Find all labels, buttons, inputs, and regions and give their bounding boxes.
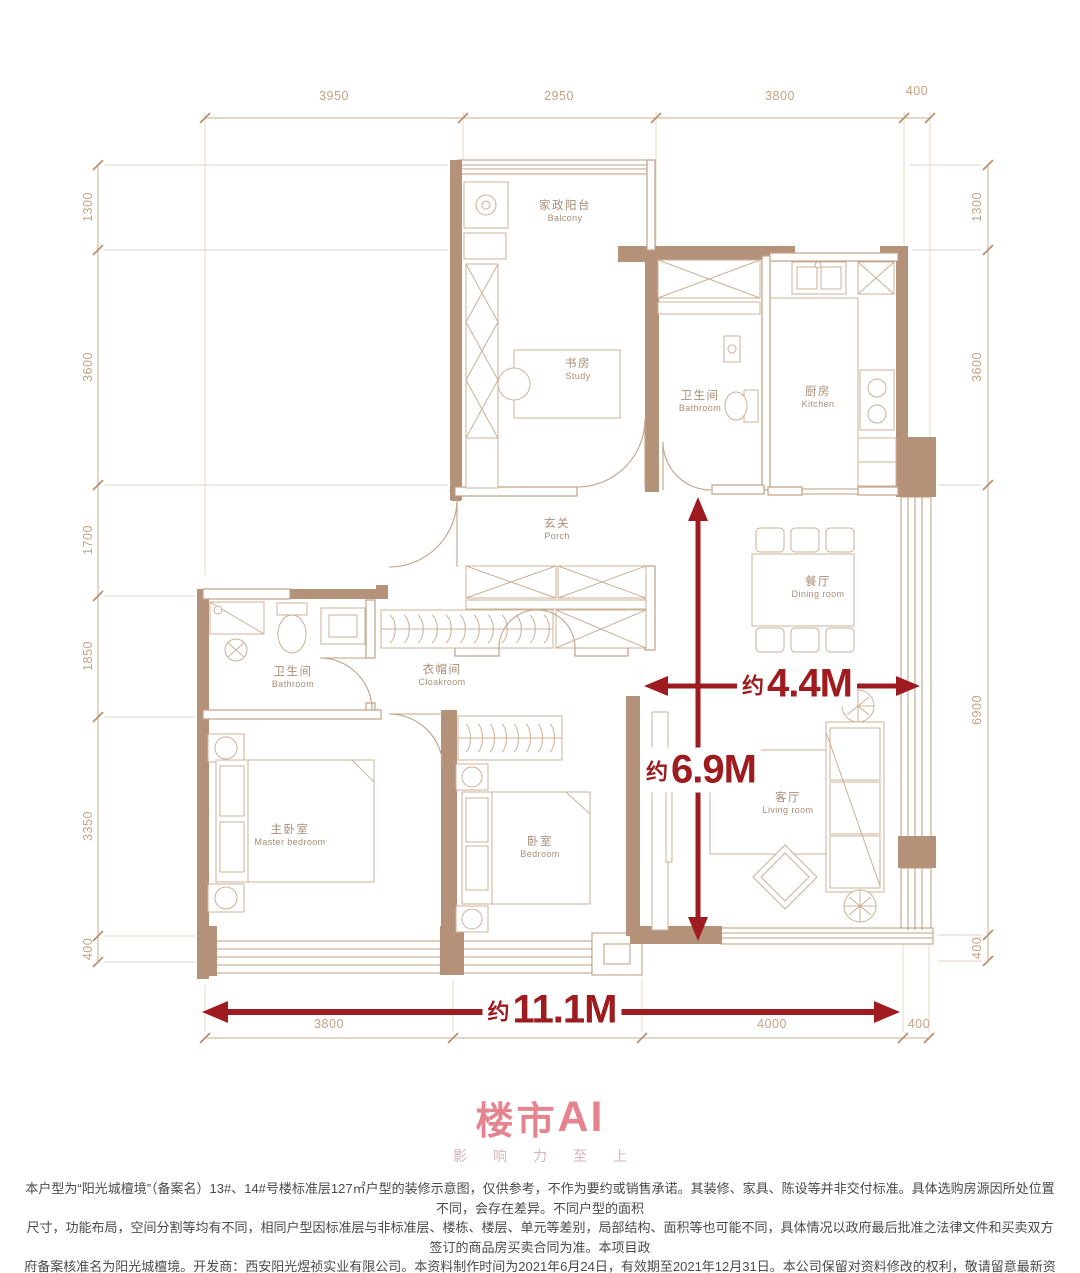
disclaimer-line-3: 府备案核准名为阳光城檀境。开发商：西安阳光煜祯实业有限公司。本资料制作时间为20… <box>22 1257 1058 1273</box>
room-bedroom-en: Bedroom <box>520 850 559 861</box>
furniture <box>208 182 896 932</box>
room-balcony-zh: 家政阳台 <box>539 199 591 213</box>
brand-logo: 楼市AI <box>0 1090 1080 1145</box>
dim-left-3350: 3350 <box>81 811 95 841</box>
room-label-balcony: 家政阳台 Balcony <box>539 199 591 225</box>
room-bathroom-mid-zh: 卫生间 <box>272 665 314 679</box>
dim-top-3950: 3950 <box>319 89 349 103</box>
dim-left-3600: 3600 <box>81 352 95 382</box>
dim-bottom-4000: 4000 <box>757 1017 787 1031</box>
dim-top-3800: 3800 <box>765 89 795 103</box>
room-label-bathroom-mid: 卫生间 Bathroom <box>272 665 314 691</box>
room-bathroom-top-zh: 卫生间 <box>679 389 721 403</box>
room-master-zh: 主卧室 <box>254 823 325 837</box>
disclaimer-line-2: 尺寸，功能布局，空间分割等均有不同，相同户型因标准层与非标准层、楼栋、楼层、单元… <box>22 1218 1058 1257</box>
floorplan-drawing <box>0 0 1080 1273</box>
dim-bottom-3800: 3800 <box>314 1017 344 1031</box>
measure-total-width-label: 约 11.1M <box>483 988 622 1033</box>
dim-right-3600: 3600 <box>970 352 984 382</box>
room-label-study: 书房 Study <box>565 357 591 383</box>
room-master-en: Master bedroom <box>254 838 325 849</box>
measure-width-value: 4.4M <box>767 662 852 707</box>
room-label-bathroom-top: 卫生间 Bathroom <box>679 389 721 415</box>
dim-top-2950: 2950 <box>544 89 574 103</box>
dim-right-400: 400 <box>970 937 984 959</box>
brand-logo-ai: AI <box>558 1093 605 1141</box>
brand-logo-zh: 楼市 <box>475 1101 557 1143</box>
room-study-en: Study <box>565 372 591 383</box>
room-cloakroom-en: Cloakroom <box>418 678 465 689</box>
room-porch-en: Porch <box>544 532 570 543</box>
room-label-bedroom: 卧室 Bedroom <box>520 835 559 861</box>
dim-left-1300: 1300 <box>81 192 95 222</box>
dim-bottom-400: 400 <box>908 1017 930 1031</box>
measure-total-value: 11.1M <box>513 988 617 1033</box>
room-cloakroom-zh: 衣帽间 <box>418 663 465 677</box>
measure-depth-value: 6.9M <box>671 748 756 793</box>
room-label-porch: 玄关 Porch <box>544 517 570 543</box>
room-label-kitchen: 厨房 Kitchen <box>802 385 835 411</box>
disclaimer-text: 本户型为“阳光城檀境”（备案名）13#、14#号楼标准层127㎡户型的装修示意图… <box>22 1179 1058 1273</box>
dim-top-400: 400 <box>906 84 928 98</box>
disclaimer-line-1: 本户型为“阳光城檀境”（备案名）13#、14#号楼标准层127㎡户型的装修示意图… <box>22 1179 1058 1218</box>
room-bathroom-top-en: Bathroom <box>679 404 721 415</box>
room-dining-en: Dining room <box>792 590 845 601</box>
measure-width-label: 约 4.4M <box>737 662 857 707</box>
room-bathroom-mid-en: Bathroom <box>272 680 314 691</box>
measure-depth-label: 约 6.9M <box>641 748 761 793</box>
measure-depth-prefix: 约 <box>646 754 668 786</box>
room-living-zh: 客厅 <box>763 791 814 805</box>
room-kitchen-en: Kitchen <box>802 400 835 411</box>
dim-right-6900: 6900 <box>970 695 984 725</box>
measure-total-prefix: 约 <box>488 994 510 1026</box>
room-label-living: 客厅 Living room <box>763 791 814 817</box>
room-label-master-bedroom: 主卧室 Master bedroom <box>254 823 325 849</box>
room-living-en: Living room <box>763 806 814 817</box>
room-porch-zh: 玄关 <box>544 517 570 531</box>
measure-width-prefix: 约 <box>742 668 764 700</box>
brand-slogan: 影响力至上 <box>0 1146 1080 1166</box>
room-bedroom-zh: 卧室 <box>520 835 559 849</box>
dim-left-400: 400 <box>81 938 95 960</box>
dim-right-1300: 1300 <box>970 192 984 222</box>
room-dining-zh: 餐厅 <box>792 575 845 589</box>
floorplan-page: 3950 2950 3800 400 1300 3600 1700 1850 3… <box>0 0 1080 1273</box>
dim-left-1850: 1850 <box>81 641 95 671</box>
room-kitchen-zh: 厨房 <box>802 385 835 399</box>
room-label-cloakroom: 衣帽间 Cloakroom <box>418 663 465 689</box>
room-balcony-en: Balcony <box>539 214 591 225</box>
room-label-dining: 餐厅 Dining room <box>792 575 845 601</box>
room-study-zh: 书房 <box>565 357 591 371</box>
dim-left-1700: 1700 <box>81 525 95 555</box>
